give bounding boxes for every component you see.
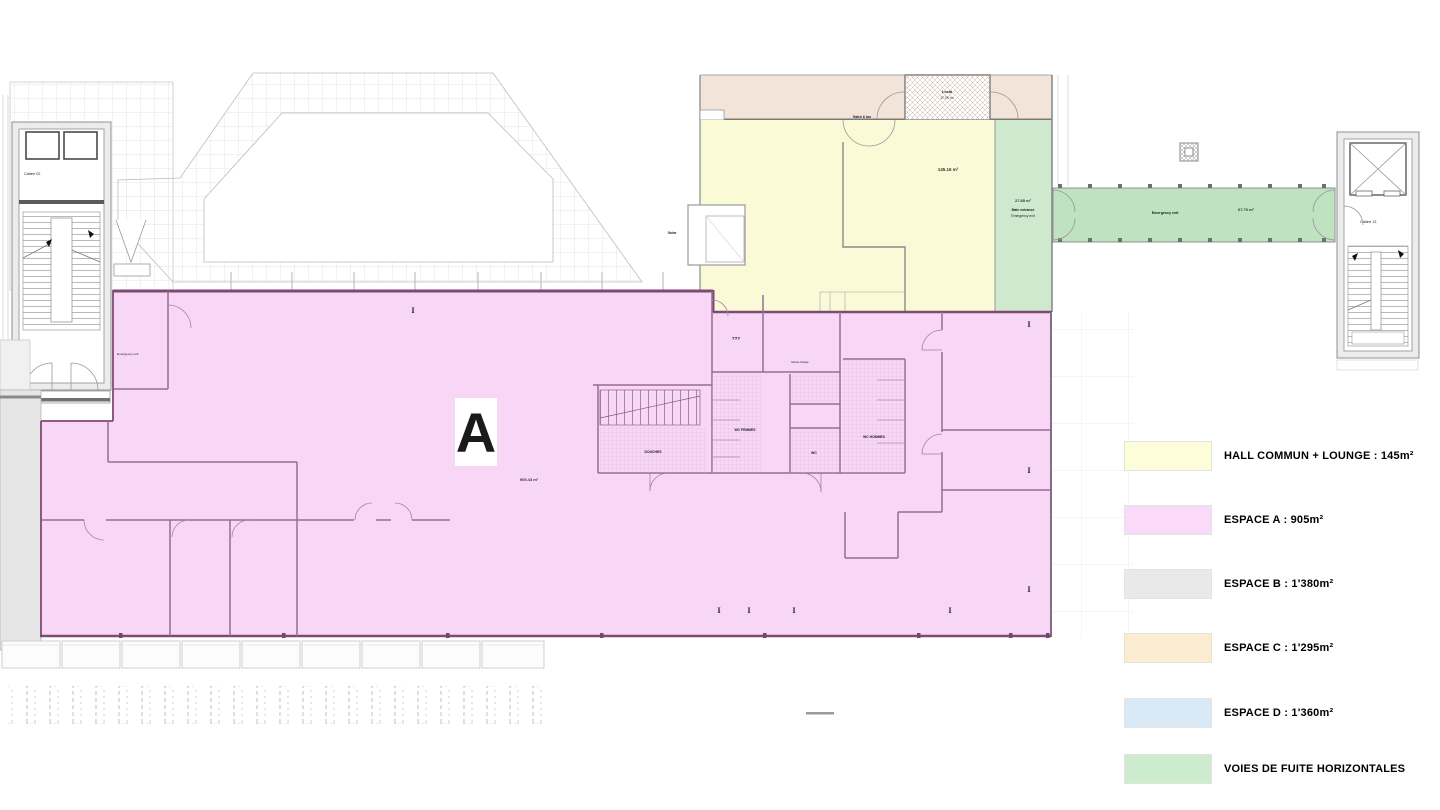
- room-label-monte-charge: Monte-charge: [791, 360, 809, 364]
- stair-core: [51, 218, 72, 322]
- legend-swatch-espace-d: [1124, 698, 1212, 728]
- zone-escape-corridor: Emergency exit 67.70 m²: [1053, 143, 1335, 242]
- facade-band: [2, 641, 834, 724]
- entrance-area-label: 27.85 m²: [1015, 198, 1032, 203]
- legend-swatch-espace-b: [1124, 569, 1212, 599]
- stair-core: [1371, 252, 1381, 330]
- corridor-area-label: 67.70 m²: [1238, 207, 1255, 212]
- hall-area-label: 145.16 m²: [938, 167, 959, 172]
- legend-swatch-espace-c: [1124, 633, 1212, 663]
- vent-box: [114, 264, 150, 276]
- emergency-exit-label: Emergency exit: [117, 352, 138, 356]
- corridor-label: Emergency exit: [1152, 211, 1179, 215]
- legend-label-espace-a: ESPACE A : 905m²: [1224, 514, 1323, 526]
- corridor-region: [1053, 188, 1335, 242]
- legend-label-espace-d: ESPACE D : 1'360m²: [1224, 707, 1333, 719]
- espace-b-region: [0, 390, 41, 650]
- wc-tiles: [790, 374, 838, 402]
- svg-text:I: I: [1027, 320, 1030, 329]
- legend-label-hall: HALL COMMUN + LOUNGE : 145m²: [1224, 450, 1414, 462]
- floor-plan-drawing: Local 17.05 m² Gaine Hatch & bar 145.16 …: [0, 0, 1440, 810]
- legend-row-hall: HALL COMMUN + LOUNGE : 145m²: [1124, 441, 1414, 471]
- landing-wall: [19, 200, 104, 204]
- room-label-wc: WC: [811, 451, 817, 455]
- legend-swatch-hall: [1124, 441, 1212, 471]
- pillar-core: [1185, 148, 1193, 156]
- dimension-dashes: [8, 686, 544, 724]
- terrace-grid-right: [1052, 312, 1134, 638]
- room-label-wc-femmes: WC FEMMES: [734, 428, 756, 432]
- svg-text:I: I: [1027, 466, 1030, 475]
- room-label: Local: [942, 89, 952, 94]
- legend-swatch-voies-de-fuite: [1124, 754, 1212, 784]
- core-stair-flight: [600, 390, 700, 425]
- wall-notch: [700, 110, 724, 120]
- zone-hall-commun: Gaine Hatch & bar 145.16 m²: [668, 115, 995, 312]
- elevator-door: [1356, 191, 1372, 196]
- entrance-label-1: Main entrance: [1012, 208, 1035, 212]
- svg-text:I: I: [948, 606, 951, 615]
- room-label-douches: DOUCHES: [645, 450, 663, 454]
- svg-text:I: I: [717, 606, 720, 615]
- svg-text:I: I: [792, 606, 795, 615]
- stair-landing: [1352, 332, 1404, 344]
- wc-tiles: [712, 374, 763, 473]
- floorplan-page: Local 17.05 m² Gaine Hatch & bar 145.16 …: [0, 0, 1440, 810]
- facade-lines-top-right: [1058, 75, 1068, 186]
- svg-text:I: I: [747, 606, 750, 615]
- hatch-bar-label: Hatch & bar: [853, 115, 872, 119]
- cabin-label: Cabine 02: [24, 172, 40, 176]
- facade-lines-below-stair: [1337, 360, 1418, 370]
- small-marker: [806, 712, 834, 715]
- svg-text:I: I: [411, 306, 414, 315]
- stairwell-right: Cabine 13: [1337, 132, 1419, 358]
- legend-row-espace-a: ESPACE A : 905m²: [1124, 505, 1323, 535]
- elevator-shaft: [26, 132, 59, 159]
- legend-label-espace-c: ESPACE C : 1'295m²: [1224, 642, 1333, 654]
- space-a-big-label: A: [456, 401, 496, 464]
- espace-b-upper: [0, 340, 30, 390]
- legend-swatch-espace-a: [1124, 505, 1212, 535]
- room-label-unknown: ???: [732, 336, 740, 341]
- svg-text:I: I: [1027, 585, 1030, 594]
- legend-label-voies-de-fuite: VOIES DE FUITE HORIZONTALES: [1224, 763, 1405, 775]
- legend-row-espace-b: ESPACE B : 1'380m²: [1124, 569, 1333, 599]
- wc-tiles: [843, 359, 905, 473]
- elevator-door: [1384, 191, 1400, 196]
- shaft-label: Gaine: [668, 231, 677, 235]
- legend-row-voies-de-fuite: VOIES DE FUITE HORIZONTALES: [1124, 754, 1405, 784]
- legend-row-espace-c: ESPACE C : 1'295m²: [1124, 633, 1333, 663]
- shaft-room: [688, 205, 745, 265]
- entrance-label-2: Emergency exit: [1011, 214, 1034, 218]
- legend-label-espace-b: ESPACE B : 1'380m²: [1224, 578, 1333, 590]
- zone-espace-c: Local 17.05 m²: [700, 75, 1052, 120]
- elevator-shaft: [64, 132, 97, 159]
- room-label-wc-hommes: WC HOMMES: [863, 435, 886, 439]
- space-a-area-label: 905.43 m²: [520, 477, 539, 482]
- espace-c-region: [700, 75, 1052, 120]
- legend-row-espace-d: ESPACE D : 1'360m²: [1124, 698, 1333, 728]
- room-area: 17.05 m²: [940, 96, 955, 100]
